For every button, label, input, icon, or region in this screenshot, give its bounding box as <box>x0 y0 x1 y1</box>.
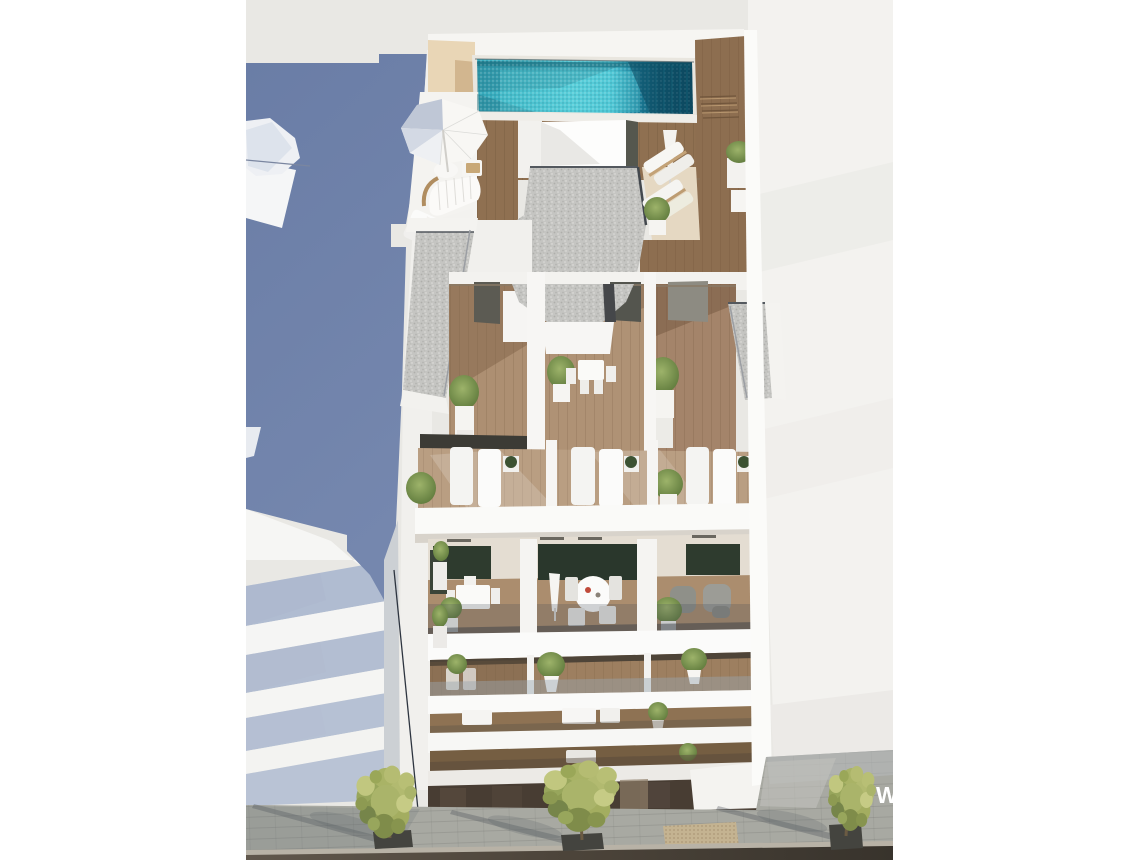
svg-text:W: W <box>876 782 898 808</box>
